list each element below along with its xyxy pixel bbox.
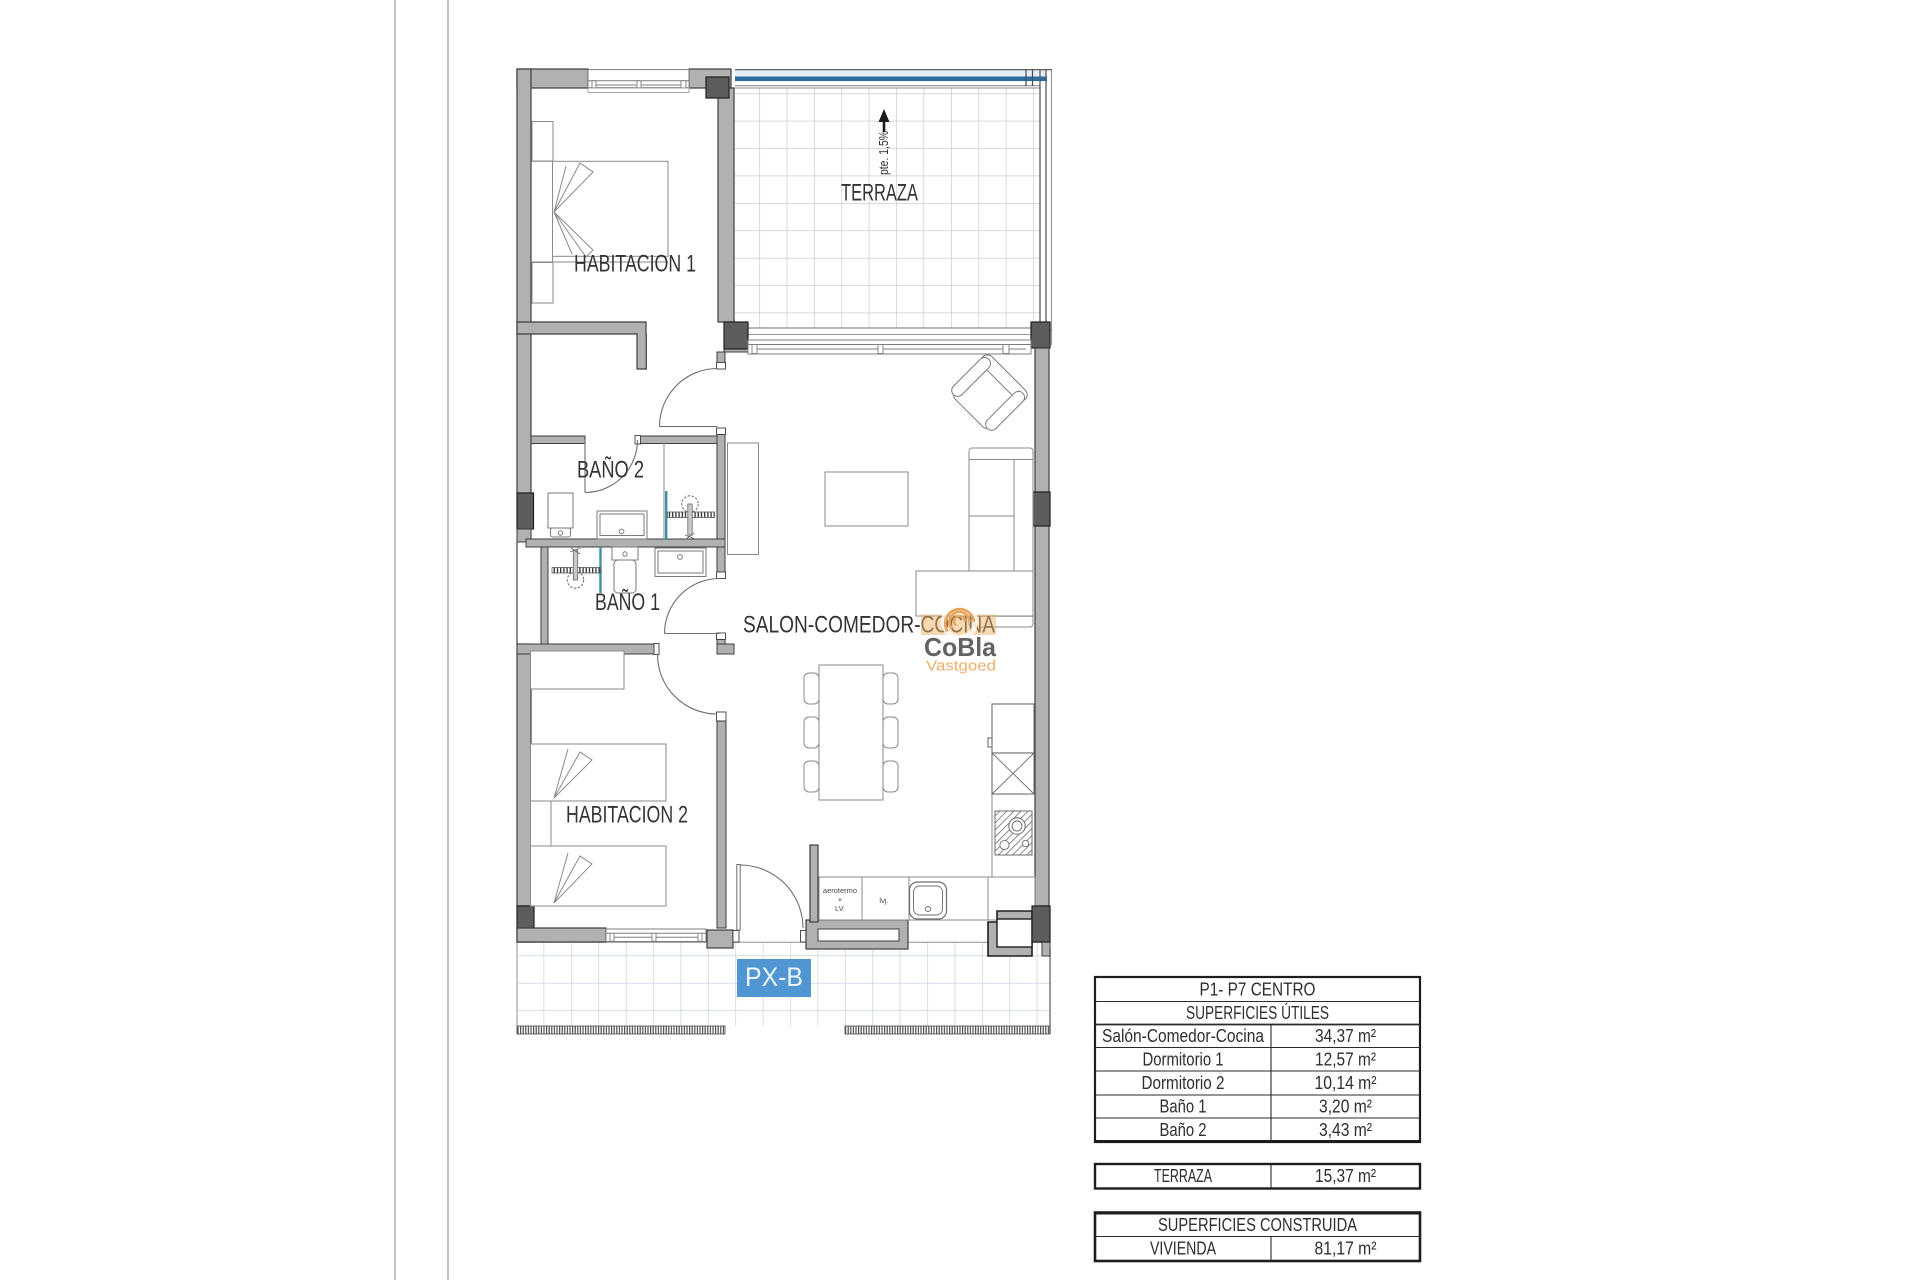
svg-text:Baño 1: Baño 1 [1160,1096,1207,1117]
svg-text:CoBla: CoBla [924,632,997,662]
svg-text:15,37 m²: 15,37 m² [1315,1165,1376,1186]
svg-text:TERRAZA: TERRAZA [841,180,918,207]
svg-text:3,20 m²: 3,20 m² [1319,1096,1372,1117]
svg-text:HABITACION 1: HABITACION 1 [574,251,696,278]
svg-text:Vastgoed: Vastgoed [926,659,996,675]
svg-text:10,14 m²: 10,14 m² [1315,1072,1377,1093]
svg-text:pte. 1,5%: pte. 1,5% [877,131,891,175]
svg-text:Dormitorio 2: Dormitorio 2 [1142,1072,1225,1093]
svg-text:LV.: LV. [835,904,845,913]
svg-text:aerotermo: aerotermo [823,886,857,895]
svg-text:81,17 m²: 81,17 m² [1315,1238,1377,1259]
svg-text:SUPERFICIES ÚTILES: SUPERFICIES ÚTILES [1186,1002,1329,1023]
svg-text:HABITACION 2: HABITACION 2 [566,802,688,829]
svg-text:BAÑO 1: BAÑO 1 [595,589,660,616]
svg-text:BAÑO 2: BAÑO 2 [577,457,644,484]
svg-text:12,57 m²: 12,57 m² [1315,1049,1376,1070]
svg-text:Salón-Comedor-Cocina: Salón-Comedor-Cocina [1102,1025,1265,1046]
svg-text:Baño 2: Baño 2 [1160,1119,1207,1140]
svg-text:Dormitorio 1: Dormitorio 1 [1143,1049,1224,1070]
svg-text:P1- P7 CENTRO: P1- P7 CENTRO [1200,979,1316,1000]
svg-text:SUPERFICIES CONSTRUIDA: SUPERFICIES CONSTRUIDA [1158,1214,1358,1235]
svg-text:lvj.: lvj. [879,896,888,905]
svg-text:VIVIENDA: VIVIENDA [1150,1238,1217,1259]
svg-text:3,43 m²: 3,43 m² [1319,1119,1372,1140]
svg-text:PX-B: PX-B [745,962,803,992]
svg-text:TERRAZA: TERRAZA [1154,1165,1212,1186]
svg-text:34,37 m²: 34,37 m² [1315,1025,1376,1046]
svg-text:+: + [838,895,843,904]
